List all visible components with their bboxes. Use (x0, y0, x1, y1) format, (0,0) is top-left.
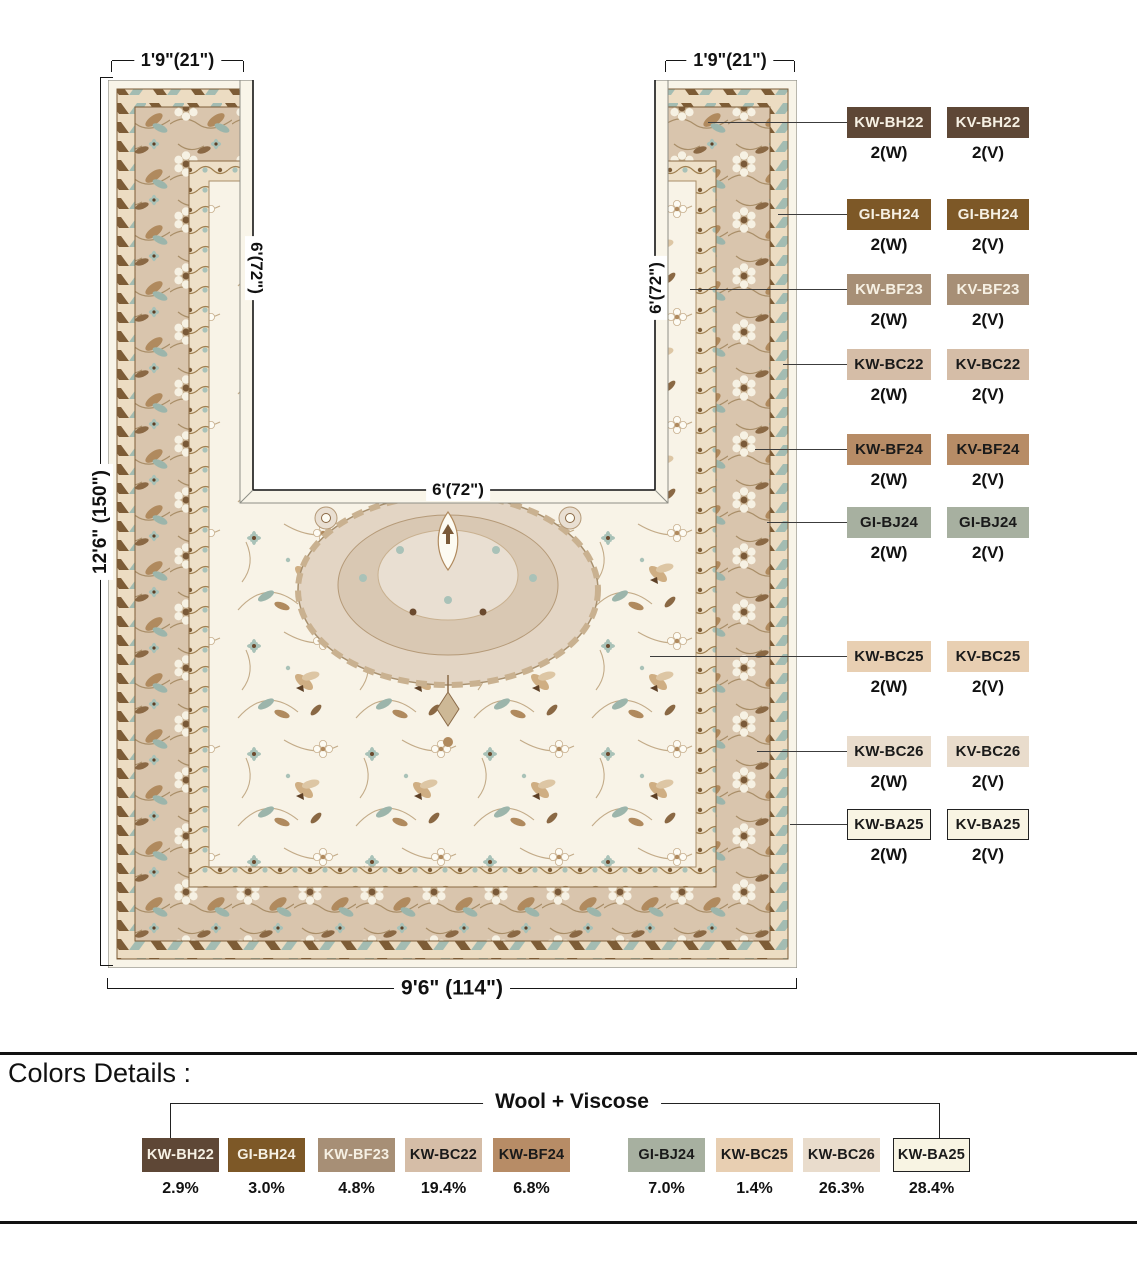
dimension-tick (665, 61, 666, 72)
color-swatch: KW-BC26 (803, 1138, 880, 1172)
colors-details-title: Colors Details : (8, 1058, 191, 1089)
wool-qty-label: 2(W) (847, 677, 931, 697)
viscose-qty-label: 2(V) (947, 143, 1029, 163)
rug-spec-sheet: 1'9"(21") 1'9"(21") 12'6" (150") 6'(72")… (0, 0, 1137, 1285)
percent-label: 7.0% (622, 1180, 711, 1198)
material-group-label: Wool + Viscose (483, 1090, 661, 1114)
wool-swatch: KW-BC25 (847, 641, 931, 672)
divider-line-bottom (0, 1221, 1137, 1224)
viscose-swatch: KV-BF23 (947, 274, 1029, 305)
viscose-swatch: GI-BJ24 (947, 507, 1029, 538)
color-swatch: GI-BH24 (228, 1138, 305, 1172)
leader-line (767, 522, 847, 523)
viscose-qty-label: 2(V) (947, 235, 1029, 255)
percent-label: 19.4% (399, 1180, 488, 1198)
percent-label: 26.3% (797, 1180, 886, 1198)
viscose-qty-label: 2(V) (947, 677, 1029, 697)
dimension-tick (796, 978, 797, 989)
dimension-top-left-label: 1'9"(21") (134, 50, 221, 71)
dimension-top-left: 1'9"(21") (112, 60, 243, 61)
leader-line (708, 122, 847, 123)
viscose-qty-label: 2(V) (947, 310, 1029, 330)
dimension-inner-left-label: 6'(72") (245, 236, 267, 300)
dimension-tick (111, 61, 112, 72)
wool-swatch: GI-BJ24 (847, 507, 931, 538)
dimension-tick (101, 77, 113, 78)
leader-line (690, 289, 847, 290)
viscose-swatch: GI-BH24 (947, 199, 1029, 230)
dimension-top-right-label: 1'9"(21") (686, 50, 773, 71)
dimension-tick (101, 965, 113, 966)
viscose-swatch: KV-BA25 (947, 809, 1029, 840)
leader-line (778, 214, 847, 215)
color-swatch: KW-BF24 (493, 1138, 570, 1172)
dimension-tick (107, 978, 108, 989)
wool-swatch: KW-BF24 (847, 434, 931, 465)
dimension-left-outer: 12'6" (150") (100, 77, 101, 966)
percent-label: 3.0% (222, 1180, 311, 1198)
wool-qty-label: 2(W) (847, 143, 931, 163)
dimension-left-outer-label: 12'6" (150") (89, 464, 113, 580)
wool-qty-label: 2(W) (847, 543, 931, 563)
dimension-bottom-label: 9'6" (114") (394, 977, 510, 1001)
wool-swatch: KW-BA25 (847, 809, 931, 840)
wool-qty-label: 2(W) (847, 385, 931, 405)
percent-label: 1.4% (710, 1180, 799, 1198)
viscose-qty-label: 2(V) (947, 772, 1029, 792)
rug-illustration (108, 80, 797, 968)
dimension-inner-right-label: 6'(72") (645, 256, 667, 320)
viscose-qty-label: 2(V) (947, 385, 1029, 405)
leader-line (757, 751, 847, 752)
leader-line (790, 824, 847, 825)
wool-swatch: KW-BF23 (847, 274, 931, 305)
wool-swatch: KW-BC22 (847, 349, 931, 380)
color-swatch: KW-BC22 (405, 1138, 482, 1172)
viscose-swatch: KV-BH22 (947, 107, 1029, 138)
viscose-swatch: KV-BC22 (947, 349, 1029, 380)
dimension-tick (243, 61, 244, 72)
leader-line (783, 364, 847, 365)
color-swatch: GI-BJ24 (628, 1138, 705, 1172)
group-bracket-drop-left (170, 1103, 171, 1138)
dimension-tick (794, 61, 795, 72)
viscose-qty-label: 2(V) (947, 470, 1029, 490)
dimension-inner-bottom-label: 6'(72") (426, 479, 490, 501)
wool-qty-label: 2(W) (847, 772, 931, 792)
wool-swatch: KW-BH22 (847, 107, 931, 138)
viscose-qty-label: 2(V) (947, 543, 1029, 563)
dimension-top-right: 1'9"(21") (666, 60, 794, 61)
color-swatch: KW-BH22 (142, 1138, 219, 1172)
percent-label: 6.8% (487, 1180, 576, 1198)
percent-label: 28.4% (887, 1180, 976, 1198)
color-swatch: KW-BF23 (318, 1138, 395, 1172)
color-swatch: KW-BA25 (893, 1138, 970, 1172)
leader-line (755, 449, 847, 450)
leader-line (650, 656, 847, 657)
viscose-swatch: KV-BC25 (947, 641, 1029, 672)
viscose-qty-label: 2(V) (947, 845, 1029, 865)
wool-qty-label: 2(W) (847, 470, 931, 490)
dimension-bottom: 9'6" (114") (108, 988, 796, 989)
group-bracket-drop-right (939, 1103, 940, 1138)
viscose-swatch: KV-BC26 (947, 736, 1029, 767)
color-swatch: KW-BC25 (716, 1138, 793, 1172)
viscose-swatch: KV-BF24 (947, 434, 1029, 465)
wool-qty-label: 2(W) (847, 310, 931, 330)
wool-qty-label: 2(W) (847, 235, 931, 255)
percent-label: 2.9% (136, 1180, 225, 1198)
percent-label: 4.8% (312, 1180, 401, 1198)
wool-swatch: GI-BH24 (847, 199, 931, 230)
wool-qty-label: 2(W) (847, 845, 931, 865)
wool-swatch: KW-BC26 (847, 736, 931, 767)
divider-line-top (0, 1052, 1137, 1055)
